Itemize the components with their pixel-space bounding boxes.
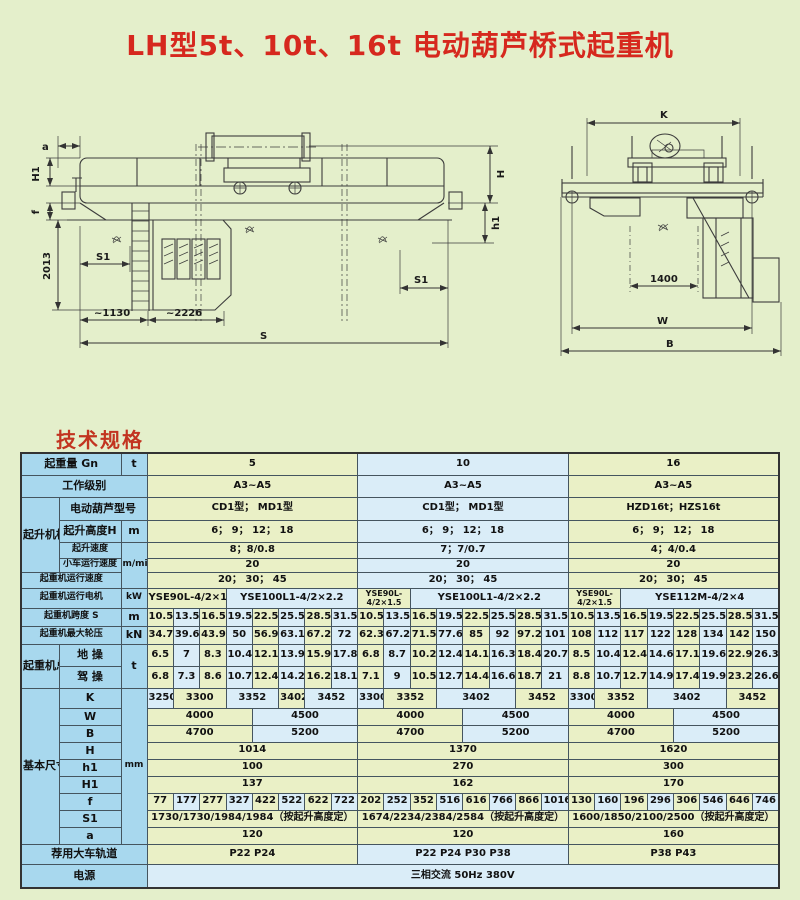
cell-ground: 8.5 bbox=[568, 644, 594, 666]
cell-ground: 18.4 bbox=[516, 644, 542, 666]
cell-wheel_loads: 56.9 bbox=[252, 626, 278, 644]
cell-f: 277 bbox=[200, 793, 226, 810]
table-row: 起升速度 m/min 8；8/0.87；7/0.74；4/0.4 bbox=[21, 542, 779, 558]
cell-f: 646 bbox=[726, 793, 752, 810]
cell-cab: 12.7 bbox=[437, 666, 463, 688]
cell-spans: 28.5 bbox=[726, 608, 752, 626]
cell-W: 4000 bbox=[147, 708, 252, 725]
unit-weight: t bbox=[121, 644, 147, 688]
dim-label-K: K bbox=[660, 110, 669, 121]
cell-H: 1014 bbox=[147, 742, 358, 759]
cell-K: 3300 bbox=[568, 688, 594, 708]
cell-a: 160 bbox=[568, 827, 779, 844]
datum-symbol bbox=[112, 237, 121, 243]
cell-H1: 162 bbox=[358, 776, 569, 793]
label-span: 起重机跨度 S bbox=[21, 608, 121, 626]
cell-H: 1620 bbox=[568, 742, 779, 759]
cell-f: 622 bbox=[305, 793, 331, 810]
catalog-page: LH型5t、10t、16t 电动葫芦桥式起重机 bbox=[0, 0, 800, 900]
cell-cab: 9 bbox=[384, 666, 410, 688]
datum-symbol bbox=[658, 224, 668, 231]
cell-K: 3452 bbox=[726, 688, 779, 708]
cell-cab: 19.9 bbox=[700, 666, 726, 688]
label-dim-H: H bbox=[59, 742, 121, 759]
table-row: 起重机运行电机 kW YSE90L-4/2×1.5YSE100L1-4/2×2.… bbox=[21, 588, 779, 608]
cell-cab: 12.4 bbox=[252, 666, 278, 688]
side-view-drawing: a H1 f 2013 S1 ~1130 ~2226 S H h1 S1 bbox=[12, 108, 557, 370]
cell-a: 120 bbox=[147, 827, 358, 844]
label-lift-speed: 起升速度 bbox=[59, 542, 121, 558]
cell-cab: 18.7 bbox=[516, 666, 542, 688]
cell-K: 3300 bbox=[173, 688, 226, 708]
cell-spans: 31.5 bbox=[753, 608, 779, 626]
label-recommended-rail: 荐用大车轨道 bbox=[21, 844, 147, 864]
cell-wheel_loads: 34.7 bbox=[147, 626, 173, 644]
cell-K: 3352 bbox=[384, 688, 437, 708]
cell-K: 3250 bbox=[147, 688, 173, 708]
cell-wheel_loads: 128 bbox=[674, 626, 700, 644]
cell-B: 4700 bbox=[358, 725, 463, 742]
cell-W: 4500 bbox=[252, 708, 357, 725]
cell-ground: 26.3 bbox=[753, 644, 779, 666]
unit-dims: mm bbox=[121, 688, 147, 844]
cell-S1: 1600/1850/2100/2500（按起升高度定） bbox=[568, 810, 779, 827]
label-ground-operated: 地 操 bbox=[59, 644, 121, 666]
cell-lift_speed: 7；7/0.7 bbox=[358, 542, 569, 558]
cell-spans: 10.5 bbox=[147, 608, 173, 626]
cell-capacity: 5 bbox=[147, 453, 358, 475]
power-supply-value: 三相交流 50Hz 380V bbox=[147, 864, 779, 888]
cell-cab: 10.7 bbox=[226, 666, 252, 688]
label-dim-H1: H1 bbox=[59, 776, 121, 793]
end-view-dimensions: K 1400 W B bbox=[561, 110, 781, 356]
label-dim-W: W bbox=[59, 708, 121, 725]
cell-ground: 6.5 bbox=[147, 644, 173, 666]
cell-rail: P22 P24 P30 P38 bbox=[358, 844, 569, 864]
cell-spans: 25.5 bbox=[279, 608, 305, 626]
end-view-drawing: K 1400 W B bbox=[553, 106, 793, 364]
cell-motors: YSE90L-4/2×1.5 bbox=[568, 588, 621, 608]
cell-spans: 16.5 bbox=[621, 608, 647, 626]
cell-ground: 6.8 bbox=[358, 644, 384, 666]
cell-lift_speed: 4；4/0.4 bbox=[568, 542, 779, 558]
cell-duty: A3~A5 bbox=[358, 475, 569, 497]
cell-wheel_loads: 67.2 bbox=[384, 626, 410, 644]
cell-a: 120 bbox=[358, 827, 569, 844]
cell-lift_height: 6； 9； 12； 18 bbox=[358, 520, 569, 542]
cell-f: 616 bbox=[463, 793, 489, 810]
cell-f: 352 bbox=[410, 793, 436, 810]
group-crane-total-weight: 起重机总重 bbox=[21, 644, 59, 688]
dim-label-2226: ~2226 bbox=[166, 308, 202, 319]
cell-crane_speed: 20； 30； 45 bbox=[568, 572, 779, 588]
label-dim-a: a bbox=[59, 827, 121, 844]
cell-trolley_speed: 20 bbox=[358, 558, 569, 572]
cell-f: 422 bbox=[252, 793, 278, 810]
cell-lift_speed: 8；8/0.8 bbox=[147, 542, 358, 558]
cell-B: 4700 bbox=[568, 725, 673, 742]
cell-wheel_loads: 63.1 bbox=[279, 626, 305, 644]
cell-ground: 16.3 bbox=[489, 644, 515, 666]
cell-spans: 16.5 bbox=[410, 608, 436, 626]
label-crane-motor: 起重机运行电机 bbox=[21, 588, 121, 608]
dim-label-f: f bbox=[31, 209, 42, 214]
cell-ground: 17.8 bbox=[331, 644, 357, 666]
cell-motors: YSE90L-4/2×1.5 bbox=[358, 588, 411, 608]
cell-f: 160 bbox=[595, 793, 621, 810]
cell-wheel_loads: 72 bbox=[331, 626, 357, 644]
cell-spans: 31.5 bbox=[331, 608, 357, 626]
cell-cab: 21 bbox=[542, 666, 568, 688]
cell-crane_speed: 20； 30； 45 bbox=[358, 572, 569, 588]
cell-f: 722 bbox=[331, 793, 357, 810]
cell-W: 4000 bbox=[358, 708, 463, 725]
table-row: 起重机总重 地 操 t 6.578.310.412.113.915.917.86… bbox=[21, 644, 779, 666]
cell-B: 5200 bbox=[252, 725, 357, 742]
cell-B: 5200 bbox=[674, 725, 779, 742]
cell-W: 4500 bbox=[463, 708, 568, 725]
cell-ground: 13.9 bbox=[279, 644, 305, 666]
cell-S1: 1730/1730/1984/1984（按起升高度定） bbox=[147, 810, 358, 827]
cell-spans: 19.5 bbox=[226, 608, 252, 626]
cell-spans: 28.5 bbox=[305, 608, 331, 626]
dim-label-H1: H1 bbox=[31, 166, 42, 181]
trolley-end-view bbox=[628, 134, 726, 182]
cell-motors: YSE90L-4/2×1.5 bbox=[147, 588, 226, 608]
label-dim-h1: h1 bbox=[59, 759, 121, 776]
dim-label-S: S bbox=[260, 331, 267, 342]
cell-cab: 7.1 bbox=[358, 666, 384, 688]
cell-ground: 10.2 bbox=[410, 644, 436, 666]
cell-cab: 17.4 bbox=[674, 666, 700, 688]
cell-f: 746 bbox=[753, 793, 779, 810]
cell-spans: 31.5 bbox=[542, 608, 568, 626]
cell-ground: 12.1 bbox=[252, 644, 278, 666]
cell-cab: 23.2 bbox=[726, 666, 752, 688]
cell-ground: 15.9 bbox=[305, 644, 331, 666]
cell-cab: 14.9 bbox=[647, 666, 673, 688]
dim-label-2013: 2013 bbox=[42, 252, 53, 280]
cell-h1: 270 bbox=[358, 759, 569, 776]
spec-table: 起重量 Gn t 51016 工作级别 A3~A5A3~A5A3~A5 起升机构… bbox=[20, 452, 780, 889]
cell-spans: 22.5 bbox=[252, 608, 278, 626]
cell-lift_height: 6； 9； 12； 18 bbox=[147, 520, 358, 542]
dim-label-h1: h1 bbox=[491, 216, 502, 230]
cell-wheel_loads: 67.2 bbox=[305, 626, 331, 644]
unit-lift-height: m bbox=[121, 520, 147, 542]
cell-ground: 10.4 bbox=[595, 644, 621, 666]
end-carriage bbox=[562, 146, 763, 203]
cell-ground: 19.6 bbox=[700, 644, 726, 666]
dim-label-S1-right: S1 bbox=[414, 275, 428, 286]
cell-K: 3352 bbox=[595, 688, 648, 708]
cell-spans: 25.5 bbox=[700, 608, 726, 626]
cell-S1: 1674/2234/2384/2584（按起升高度定） bbox=[358, 810, 569, 827]
cell-cab: 12.7 bbox=[621, 666, 647, 688]
page-title: LH型5t、10t、16t 电动葫芦桥式起重机 bbox=[0, 24, 800, 64]
label-trolley-speed: 小车运行速度 bbox=[59, 558, 121, 572]
cell-wheel_loads: 134 bbox=[700, 626, 726, 644]
cell-B: 5200 bbox=[463, 725, 568, 742]
cell-lift_height: 6； 9； 12； 18 bbox=[568, 520, 779, 542]
label-wheel-load: 起重机最大轮压 bbox=[21, 626, 121, 644]
cell-capacity: 10 bbox=[358, 453, 569, 475]
dim-label-W: W bbox=[657, 316, 668, 327]
table-row: 起重机最大轮压 kN 34.739.643.95056.963.167.2726… bbox=[21, 626, 779, 644]
cell-hoist_model: CD1型； MD1型 bbox=[358, 497, 569, 520]
cell-wheel_loads: 43.9 bbox=[200, 626, 226, 644]
cell-spans: 13.5 bbox=[595, 608, 621, 626]
cell-cab: 18.1 bbox=[331, 666, 357, 688]
cell-wheel_loads: 150 bbox=[753, 626, 779, 644]
cell-K: 3402 bbox=[437, 688, 516, 708]
cell-cab: 14.2 bbox=[279, 666, 305, 688]
label-lift-height: 起升高度H bbox=[59, 520, 121, 542]
dim-label-1400: 1400 bbox=[650, 274, 678, 285]
cell-f: 766 bbox=[489, 793, 515, 810]
dim-label-B: B bbox=[666, 339, 674, 350]
cell-f: 546 bbox=[700, 793, 726, 810]
cell-cab: 10.7 bbox=[595, 666, 621, 688]
bridge-girder bbox=[62, 158, 462, 220]
table-row: 基本尺寸 K mm 325033003352340234523300335234… bbox=[21, 688, 779, 708]
cell-duty: A3~A5 bbox=[568, 475, 779, 497]
cell-hoist_model: CD1型； MD1型 bbox=[147, 497, 358, 520]
cell-K: 3452 bbox=[305, 688, 358, 708]
cell-ground: 8.7 bbox=[384, 644, 410, 666]
cell-W: 4000 bbox=[568, 708, 673, 725]
cell-rail: P22 P24 bbox=[147, 844, 358, 864]
cell-ground: 8.3 bbox=[200, 644, 226, 666]
datum-symbol bbox=[378, 237, 387, 243]
cell-wheel_loads: 71.5 bbox=[410, 626, 436, 644]
table-row: 工作级别 A3~A5A3~A5A3~A5 bbox=[21, 475, 779, 497]
cell-wheel_loads: 39.6 bbox=[173, 626, 199, 644]
cell-f: 202 bbox=[358, 793, 384, 810]
cell-ground: 12.4 bbox=[621, 644, 647, 666]
cell-wheel_loads: 112 bbox=[595, 626, 621, 644]
cell-motors: YSE112M-4/2×4 bbox=[621, 588, 779, 608]
cell-spans: 22.5 bbox=[674, 608, 700, 626]
cell-wheel_loads: 117 bbox=[621, 626, 647, 644]
cell-spans: 22.5 bbox=[463, 608, 489, 626]
table-row: 起重机跨度 S m 10.513.516.519.522.525.528.531… bbox=[21, 608, 779, 626]
cell-wheel_loads: 77.6 bbox=[437, 626, 463, 644]
cell-cab: 16.2 bbox=[305, 666, 331, 688]
cell-spans: 25.5 bbox=[489, 608, 515, 626]
cell-wheel_loads: 85 bbox=[463, 626, 489, 644]
cell-K: 3352 bbox=[226, 688, 279, 708]
cell-wheel_loads: 92 bbox=[489, 626, 515, 644]
cell-cab: 16.6 bbox=[489, 666, 515, 688]
cell-K: 3452 bbox=[516, 688, 569, 708]
hoist-centerlines bbox=[196, 144, 347, 324]
cell-spans: 13.5 bbox=[384, 608, 410, 626]
cell-spans: 19.5 bbox=[647, 608, 673, 626]
table-row: 起升机构 电动葫芦型号 CD1型； MD1型CD1型； MD1型HZD16t；H… bbox=[21, 497, 779, 520]
cell-hoist_model: HZD16t；HZS16t bbox=[568, 497, 779, 520]
cell-H1: 137 bbox=[147, 776, 358, 793]
label-cab-operated: 驾 操 bbox=[59, 666, 121, 688]
cell-rail: P38 P43 bbox=[568, 844, 779, 864]
unit-wheel-load: kN bbox=[121, 626, 147, 644]
cell-wheel_loads: 122 bbox=[647, 626, 673, 644]
cell-wheel_loads: 97.2 bbox=[516, 626, 542, 644]
table-row: 电源 三相交流 50Hz 380V bbox=[21, 864, 779, 888]
label-power-supply: 电源 bbox=[21, 864, 147, 888]
label-hoist-model: 电动葫芦型号 bbox=[59, 497, 147, 520]
cell-wheel_loads: 62.3 bbox=[358, 626, 384, 644]
cell-cab: 7.3 bbox=[173, 666, 199, 688]
cell-f: 306 bbox=[674, 793, 700, 810]
group-basic-dimensions: 基本尺寸 bbox=[21, 688, 59, 844]
cell-spans: 19.5 bbox=[437, 608, 463, 626]
cell-f: 522 bbox=[279, 793, 305, 810]
datum-symbol bbox=[245, 227, 254, 233]
cell-K: 3402 bbox=[647, 688, 726, 708]
cell-h1: 300 bbox=[568, 759, 779, 776]
dim-label-a: a bbox=[42, 142, 49, 153]
cell-ground: 7 bbox=[173, 644, 199, 666]
cell-motors: YSE100L1-4/2×2.2 bbox=[410, 588, 568, 608]
label-dim-K: K bbox=[59, 688, 121, 708]
cell-ground: 22.9 bbox=[726, 644, 752, 666]
cell-spans: 10.5 bbox=[358, 608, 384, 626]
unit-motor: kW bbox=[121, 588, 147, 608]
hoist-trolley bbox=[198, 133, 317, 194]
cell-f: 327 bbox=[226, 793, 252, 810]
cell-f: 77 bbox=[147, 793, 173, 810]
cell-W: 4500 bbox=[674, 708, 779, 725]
cell-trolley_speed: 20 bbox=[568, 558, 779, 572]
spec-table-body: 起重量 Gn t 51016 工作级别 A3~A5A3~A5A3~A5 起升机构… bbox=[21, 453, 779, 888]
cell-spans: 10.5 bbox=[568, 608, 594, 626]
cell-f: 196 bbox=[621, 793, 647, 810]
cell-f: 130 bbox=[568, 793, 594, 810]
unit-span: m bbox=[121, 608, 147, 626]
cell-f: 516 bbox=[437, 793, 463, 810]
cell-ground: 12.4 bbox=[437, 644, 463, 666]
label-dim-S1: S1 bbox=[59, 810, 121, 827]
label-duty-class: 工作级别 bbox=[21, 475, 147, 497]
dim-label-1130: ~1130 bbox=[94, 308, 130, 319]
cell-ground: 14.6 bbox=[647, 644, 673, 666]
label-dim-f: f bbox=[59, 793, 121, 810]
cell-f: 296 bbox=[647, 793, 673, 810]
cell-f: 177 bbox=[173, 793, 199, 810]
group-hoist-mechanism: 起升机构 bbox=[21, 497, 59, 572]
table-row: 荐用大车轨道 P22 P24P22 P24 P30 P38P38 P43 bbox=[21, 844, 779, 864]
cell-duty: A3~A5 bbox=[147, 475, 358, 497]
dim-label-H: H bbox=[496, 170, 507, 178]
label-dim-B: B bbox=[59, 725, 121, 742]
label-capacity: 起重量 Gn bbox=[21, 453, 121, 475]
table-row: 起重量 Gn t 51016 bbox=[21, 453, 779, 475]
cell-f: 866 bbox=[516, 793, 542, 810]
cell-ground: 10.4 bbox=[226, 644, 252, 666]
cell-cab: 14.4 bbox=[463, 666, 489, 688]
cell-K: 3402 bbox=[279, 688, 305, 708]
cell-f: 1016 bbox=[542, 793, 568, 810]
cell-wheel_loads: 101 bbox=[542, 626, 568, 644]
cell-cab: 6.8 bbox=[147, 666, 173, 688]
cell-h1: 100 bbox=[147, 759, 358, 776]
label-crane-speed: 起重机运行速度 bbox=[21, 572, 121, 588]
cell-ground: 14.1 bbox=[463, 644, 489, 666]
cell-crane_speed: 20； 30； 45 bbox=[147, 572, 358, 588]
cell-cab: 10.5 bbox=[410, 666, 436, 688]
cell-motors: YSE100L1-4/2×2.2 bbox=[226, 588, 358, 608]
cell-cab: 26.6 bbox=[753, 666, 779, 688]
unit-capacity: t bbox=[121, 453, 147, 475]
cell-cab: 8.8 bbox=[568, 666, 594, 688]
cell-H: 1370 bbox=[358, 742, 569, 759]
cell-cab: 8.6 bbox=[200, 666, 226, 688]
table-row: 起升高度H m 6； 9； 12； 186； 9； 12； 186； 9； 12… bbox=[21, 520, 779, 542]
cell-f: 252 bbox=[384, 793, 410, 810]
cell-ground: 20.7 bbox=[542, 644, 568, 666]
cell-spans: 16.5 bbox=[200, 608, 226, 626]
cell-wheel_loads: 108 bbox=[568, 626, 594, 644]
section-heading: 技术规格 bbox=[56, 424, 144, 453]
cell-H1: 170 bbox=[568, 776, 779, 793]
dim-label-S1-left: S1 bbox=[96, 252, 110, 263]
cell-ground: 17.1 bbox=[674, 644, 700, 666]
cell-wheel_loads: 50 bbox=[226, 626, 252, 644]
cell-K: 3300 bbox=[358, 688, 384, 708]
ladder bbox=[132, 203, 149, 311]
unit-speed: m/min bbox=[121, 542, 147, 588]
cell-wheel_loads: 142 bbox=[726, 626, 752, 644]
cell-capacity: 16 bbox=[568, 453, 779, 475]
driver-cab bbox=[153, 220, 231, 310]
cell-trolley_speed: 20 bbox=[147, 558, 358, 572]
cell-spans: 28.5 bbox=[516, 608, 542, 626]
cell-spans: 13.5 bbox=[173, 608, 199, 626]
cell-B: 4700 bbox=[147, 725, 252, 742]
